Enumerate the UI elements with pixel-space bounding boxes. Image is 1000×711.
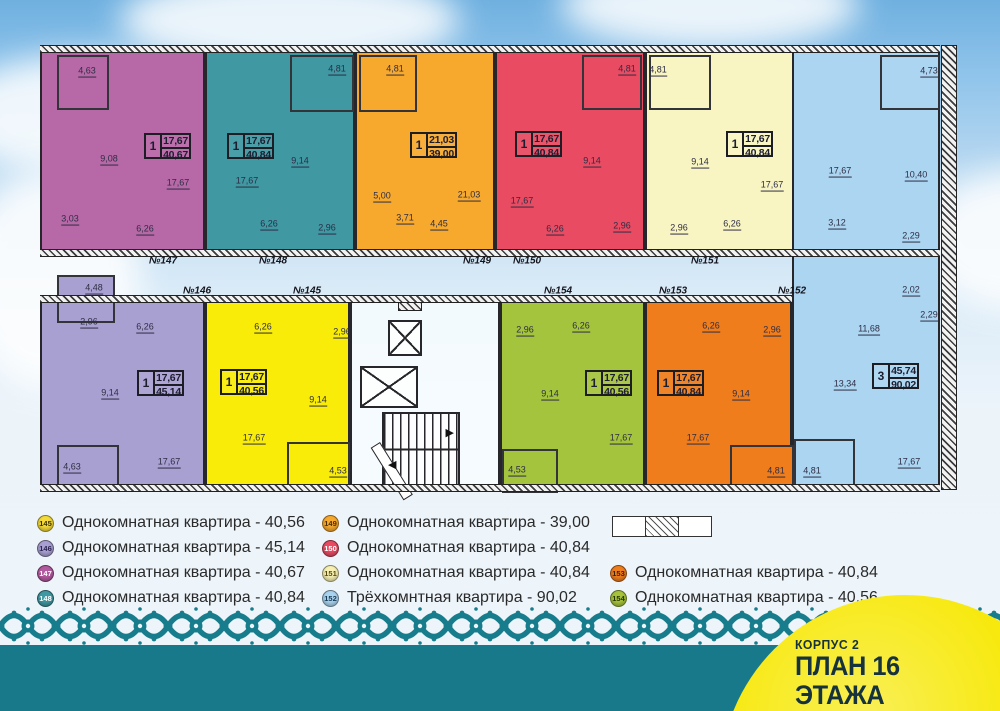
stair-up-arrow: ▶ (446, 428, 454, 439)
room-area-label: 13,34 (834, 380, 857, 391)
room-area-label: 9,14 (101, 389, 119, 400)
legend-item-153: 153Однокомнатная квартира - 40,84 (610, 564, 878, 582)
legend-circle-146: 146 (37, 540, 54, 557)
apartment-info-box: 1 17,67 40,67 (144, 133, 191, 159)
total-area: 39,00 (428, 148, 455, 160)
room-area-label: 2,29 (920, 311, 938, 322)
room-count: 1 (659, 372, 675, 394)
room-area-label: 9,14 (291, 157, 309, 168)
apartment-info-box: 1 21,03 39,00 (410, 132, 457, 158)
room-area-label: 17,67 (761, 181, 784, 192)
legend-item-145: 145Однокомнатная квартира - 40,56 (37, 514, 305, 532)
legend-circle-147: 147 (37, 565, 54, 582)
legend-circle-149: 149 (322, 515, 339, 532)
apartment-151[interactable]: 4,819,1417,676,262,961 17,67 40,84 (645, 45, 795, 255)
apartment-info-box: 3 45,74 90,02 (872, 363, 919, 389)
elevator-shaft-small (388, 320, 422, 356)
legend-text: Однокомнатная квартира - 40,56 (635, 589, 878, 607)
room-area-label: 4,45 (430, 220, 448, 231)
room-area-label: 6,26 (260, 220, 278, 231)
service-shaft (941, 45, 957, 490)
room-area-label: 17,67 (236, 177, 259, 188)
apartment-number-154: №154 (544, 286, 572, 297)
total-area: 45,14 (155, 386, 182, 398)
legend-text: Однокомнатная квартира - 40,84 (62, 589, 305, 607)
room-count: 1 (517, 133, 533, 155)
room-area-label: 6,26 (136, 323, 154, 334)
room-area-label: 9,14 (691, 158, 709, 169)
room-area-label: 6,26 (546, 225, 564, 236)
title-block: КОРПУС 2 ПЛАН 16 ЭТАЖА (795, 638, 988, 709)
room-area-label: 4,81 (803, 467, 821, 478)
elevator-shaft-large (360, 366, 418, 408)
room-area-label: 4,81 (767, 467, 785, 478)
wall-hatch-key (612, 516, 712, 537)
apartment-152[interactable]: 4,7317,6710,403,122,292,022,2911,6813,34… (792, 45, 940, 490)
legend-item-150: 150Однокомнатная квартира - 40,84 (322, 539, 590, 557)
room-area-label: 4,53 (508, 466, 526, 477)
total-area: 40,84 (533, 147, 560, 159)
building-label: КОРПУС 2 (795, 638, 988, 652)
room-count: 1 (728, 133, 744, 155)
apartment-number-150: №150 (513, 256, 541, 267)
total-area: 40,56 (603, 386, 630, 398)
room-area-label: 17,67 (898, 458, 921, 469)
stair-down-arrow: ◀ (388, 460, 396, 471)
apartment-145[interactable]: 6,262,969,1417,674,531 17,67 40,56 (205, 300, 350, 490)
legend-item-146: 146Однокомнатная квартира - 45,14 (37, 539, 305, 557)
poster: 4,639,0817,673,036,261 17,67 40,674,819,… (0, 0, 1000, 711)
room-count: 1 (229, 135, 245, 157)
room-count: 1 (139, 372, 155, 394)
room-area-label: 9,14 (583, 157, 601, 168)
living-area: 17,67 (155, 372, 182, 386)
apartment-number-145: №145 (293, 286, 321, 297)
room-area-label: 4,81 (649, 66, 667, 77)
room-area-label: 4,81 (328, 65, 346, 76)
total-area: 40,84 (744, 147, 771, 159)
room-area-label: 2,02 (902, 286, 920, 297)
living-area: 17,67 (533, 133, 560, 147)
staircase: ▶ ◀ (382, 412, 460, 487)
room-area-label: 2,96 (516, 326, 534, 337)
wall (40, 484, 940, 492)
legend-text: Трёхкомнтная квартира - 90,02 (347, 589, 577, 607)
living-area: 17,67 (603, 372, 630, 386)
floor-plan: 4,639,0817,673,036,261 17,67 40,674,819,… (0, 0, 1000, 500)
legend-text: Однокомнатная квартира - 45,14 (62, 539, 305, 557)
apartment-number-148: №148 (259, 256, 287, 267)
wall (40, 45, 940, 53)
room-area-label: 17,67 (158, 458, 181, 469)
room-area-label: 3,12 (828, 219, 846, 230)
legend-item-154: 154Однокомнатная квартира - 40,56 (610, 589, 878, 607)
room-area-label: 4,53 (329, 467, 347, 478)
apartment-info-box: 1 17,67 40,84 (227, 133, 274, 159)
room-count: 1 (222, 371, 238, 393)
apartment-150[interactable]: 4,819,1417,676,262,961 17,67 40,84 (495, 45, 645, 255)
room-area-label: 9,14 (309, 396, 327, 407)
room-area-label: 6,26 (723, 220, 741, 231)
room-area-label: 2,96 (763, 326, 781, 337)
room-area-label: 11,68 (858, 325, 880, 336)
apartment-number-153: №153 (659, 286, 687, 297)
living-area: 17,67 (162, 135, 189, 149)
room-area-label: 5,00 (373, 192, 391, 203)
apartment-info-box: 1 17,67 40,84 (657, 370, 704, 396)
room-count: 1 (587, 372, 603, 394)
room-area-label: 17,67 (511, 197, 534, 208)
apartment-number-149: №149 (463, 256, 491, 267)
legend-circle-152: 152 (322, 590, 339, 607)
living-area: 45,74 (890, 365, 917, 379)
room-area-label: 3,71 (396, 214, 414, 225)
apartment-info-box: 1 17,67 40,84 (726, 131, 773, 157)
total-area: 40,56 (238, 385, 265, 397)
room-count: 1 (412, 134, 428, 156)
legend-text: Однокомнатная квартира - 40,67 (62, 564, 305, 582)
legend-text: Однокомнатная квартира - 39,00 (347, 514, 590, 532)
room-area-label: 17,67 (687, 434, 710, 445)
room-count: 3 (874, 365, 890, 387)
apartment-147[interactable]: 4,639,0817,673,036,261 17,67 40,67 (40, 45, 205, 255)
room-area-label: 2,96 (670, 224, 688, 235)
apartment-number-147: №147 (149, 256, 177, 267)
legend-item-148: 148Однокомнатная квартира - 40,84 (37, 589, 305, 607)
total-area: 40,84 (245, 149, 272, 161)
room-area-label: 6,26 (702, 322, 720, 333)
apartment-info-box: 1 17,67 45,14 (137, 370, 184, 396)
room-area-label: 4,81 (386, 65, 404, 76)
room-area-label: 10,40 (905, 171, 928, 182)
room-area-label: 2,96 (613, 222, 631, 233)
living-area: 17,67 (675, 372, 702, 386)
balcony (57, 55, 109, 110)
room-area-label: 4,63 (78, 67, 96, 78)
apartment-info-box: 1 17,67 40,56 (220, 369, 267, 395)
apartment-info-box: 1 17,67 40,84 (515, 131, 562, 157)
total-area: 40,84 (675, 386, 702, 398)
room-area-label: 4,48 (85, 284, 103, 295)
room-area-label: 17,67 (829, 167, 852, 178)
balcony (880, 55, 940, 110)
apartment-146[interactable]: 4,482,966,269,1417,674,631 17,67 45,14 (40, 295, 205, 490)
balcony (649, 55, 711, 110)
apartment-number-152: №152 (778, 286, 806, 297)
living-area: 17,67 (744, 133, 771, 147)
legend-text: Однокомнатная квартира - 40,56 (62, 514, 305, 532)
room-area-label: 3,03 (61, 215, 79, 226)
room-area-label: 4,73 (920, 67, 938, 78)
legend-circle-150: 150 (322, 540, 339, 557)
room-area-label: 6,26 (254, 323, 272, 334)
room-area-label: 9,14 (732, 390, 750, 401)
page-title: ПЛАН 16 ЭТАЖА (795, 652, 988, 709)
legend-item-149: 149Однокомнатная квартира - 39,00 (322, 514, 590, 532)
living-area: 17,67 (245, 135, 272, 149)
room-area-label: 17,67 (167, 179, 190, 190)
room-area-label: 6,26 (136, 225, 154, 236)
legend-circle-145: 145 (37, 515, 54, 532)
living-area: 17,67 (238, 371, 265, 385)
room-area-label: 17,67 (243, 434, 266, 445)
room-area-label: 4,63 (63, 463, 81, 474)
legend-text: Однокомнатная квартира - 40,84 (347, 539, 590, 557)
room-area-label: 2,29 (902, 232, 920, 243)
apartment-number-146: №146 (183, 286, 211, 297)
apartment-info-box: 1 17,67 40,56 (585, 370, 632, 396)
apartment-154[interactable]: 2,966,269,1417,674,531 17,67 40,56 (500, 300, 645, 490)
apartment-149[interactable]: 4,8121,035,003,714,451 21,03 39,00 (355, 45, 495, 255)
room-area-label: 4,81 (618, 65, 636, 76)
total-area: 90,02 (890, 379, 917, 391)
room-area-label: 6,26 (572, 322, 590, 333)
apartment-number-151: №151 (691, 256, 719, 267)
room-count: 1 (146, 135, 162, 157)
legend-item-151: 151Однокомнатная квартира - 40,84 (322, 564, 590, 582)
room-area-label: 21,03 (458, 191, 481, 202)
apartment-153[interactable]: 6,262,969,1417,674,811 17,67 40,84 (645, 300, 792, 490)
room-area-label: 2,96 (318, 224, 336, 235)
apartment-148[interactable]: 4,819,1417,676,262,961 17,67 40,84 (205, 45, 355, 255)
room-area-label: 17,67 (610, 434, 633, 445)
legend-circle-148: 148 (37, 590, 54, 607)
legend-circle-154: 154 (610, 590, 627, 607)
room-area-label: 2,96 (333, 328, 351, 339)
room-area-label: 2,96 (80, 318, 98, 329)
total-area: 40,67 (162, 149, 189, 161)
legend-text: Однокомнатная квартира - 40,84 (347, 564, 590, 582)
legend-item-147: 147Однокомнатная квартира - 40,67 (37, 564, 305, 582)
room-area-label: 9,14 (541, 390, 559, 401)
legend-circle-153: 153 (610, 565, 627, 582)
room-area-label: 9,08 (100, 155, 118, 166)
legend-item-152: 152Трёхкомнтная квартира - 90,02 (322, 589, 577, 607)
legend-text: Однокомнатная квартира - 40,84 (635, 564, 878, 582)
living-area: 21,03 (428, 134, 455, 148)
legend-circle-151: 151 (322, 565, 339, 582)
